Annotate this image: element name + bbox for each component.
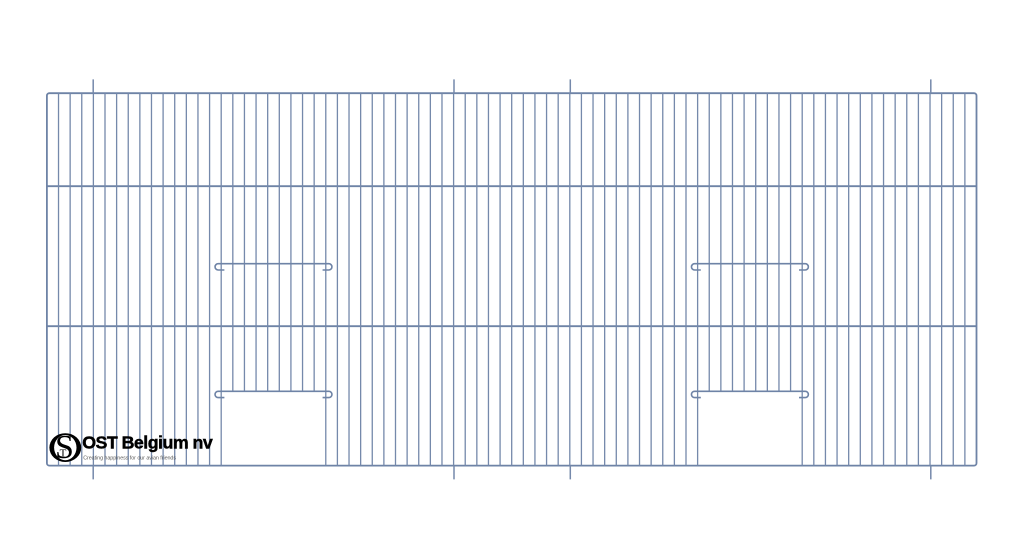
svg-text:Creating happiness for our avi: Creating happiness for our avian friends bbox=[83, 455, 176, 461]
svg-text:OST Belgium nv: OST Belgium nv bbox=[82, 432, 213, 452]
svg-text:T: T bbox=[60, 447, 67, 459]
